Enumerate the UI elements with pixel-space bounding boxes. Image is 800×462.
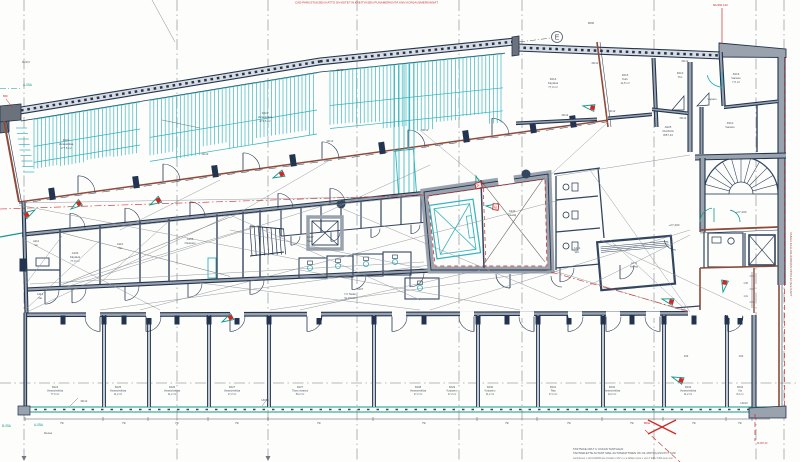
svg-text:1,50: 1,50 [743,282,748,285]
svg-text:A-05A: A-05A [34,423,44,427]
svg-text:Db12: Db12 [682,59,689,63]
svg-text:17,2 m²: 17,2 m² [228,393,237,396]
svg-text:9000: 9000 [588,21,595,25]
svg-text:W57,43: W57,43 [663,133,673,137]
svg-text:77,0 m²: 77,0 m² [51,393,60,396]
svg-text:W-07340: W-07340 [344,296,356,300]
svg-text:VANHA KALLIOLUUNNAN PINTA EI O: VANHA KALLIOLUUNNAN PINTA EI OLE KART [789,232,793,297]
svg-text:79¹: 79¹ [60,421,64,425]
svg-text:K024: K024 [52,385,59,389]
svg-text:17,2 m²: 17,2 m² [414,393,423,396]
svg-text:Db12: Db12 [337,68,344,72]
svg-text:CAD-PIIRUSTUKSEN KATTO ON €STE: CAD-PIIRUSTUKSEN KATTO ON €STE? W €REITY… [295,1,438,5]
svg-text:R+30,5: R+30,5 [22,61,30,64]
svg-text:Aswälj: Aswälj [508,213,516,217]
svg-text:177,5 m²: 177,5 m² [60,146,71,150]
svg-text:A-05A: A-05A [23,83,33,87]
svg-text:WC: WC [575,250,580,254]
svg-text:17,2 m²: 17,2 m² [448,393,457,396]
svg-text:Db12: Db12 [81,399,88,403]
svg-text:79¹: 79¹ [505,421,509,425]
svg-text:K027: K027 [229,385,236,389]
svg-text:Db12: Db12 [327,139,334,143]
svg-text:K031: K031 [550,385,557,389]
svg-text:K033: K033 [685,385,692,389]
svg-text:W-067,20: W-067,20 [757,442,768,445]
svg-text:Vapaus: Vapaus [707,97,717,101]
svg-text:UR14: UR14 [740,401,748,405]
svg-text:79¹: 79¹ [422,421,426,425]
svg-text:11,2 m²: 11,2 m² [114,393,122,396]
svg-text:Db12: Db12 [422,128,429,132]
svg-text:K028: K028 [415,385,422,389]
svg-text:473,5 m²: 473,5 m² [259,119,270,123]
svg-text:Va: Va [34,243,38,247]
svg-text:11,2 m²: 11,2 m² [486,393,494,396]
svg-text:E: E [555,35,560,42]
svg-text:79¹: 79¹ [692,421,696,425]
svg-text:+27,200: +27,200 [669,223,680,227]
svg-text:79¹: 79¹ [567,421,571,425]
svg-text:Oleskelu: Oleskelu [185,241,196,245]
svg-text:K025: K025 [115,385,122,389]
svg-text:Ruutua: Ruutua [44,432,53,435]
svg-text:+27,200: +27,200 [736,210,747,214]
svg-text:79¹: 79¹ [175,421,179,425]
svg-text:11,5 m²: 11,5 m² [620,81,629,85]
svg-text:79¹: 79¹ [738,421,742,425]
svg-text:79¹: 79¹ [630,421,634,425]
svg-text:Aurinkouw u old LKERR aw römää: Aurinkouw u old LKERR aw römäär u MV u u… [573,456,673,460]
svg-text:TANTAWLETTE ACTANT MAIL AUTOMA: TANTAWLETTE ACTANT MAIL AUTOMAATTINEN OK… [573,451,676,455]
svg-text:Varasto: Varasto [725,125,735,129]
svg-text:11,2 m²: 11,2 m² [684,393,692,396]
svg-text:A107: A107 [357,287,364,291]
svg-text:B09a: B09a [644,421,651,425]
svg-text:77,0 m²: 77,0 m² [70,259,80,263]
svg-text:Db12: Db12 [562,113,569,117]
svg-text:Db12: Db12 [592,61,599,65]
svg-text:Db12: Db12 [680,116,687,120]
svg-text:Vaat: Vaat [307,239,313,243]
svg-text:77,0 m²: 77,0 m² [548,85,558,89]
svg-text:Tkn: Tkn [678,75,683,79]
svg-text:1,0x: 1,0x [743,295,748,298]
svg-text:K027: K027 [297,385,304,389]
svg-text:Vai: Vai [38,296,42,300]
svg-text:50,2 m²: 50,2 m² [296,393,305,396]
svg-text:K030: K030 [487,385,494,389]
svg-text:60x360 140: 60x360 140 [713,3,728,7]
svg-text:Vai: Vai [118,246,122,250]
svg-text:Db12: Db12 [202,152,209,156]
svg-text:7,5 m²: 7,5 m² [732,80,740,84]
svg-text:17,2 m²: 17,2 m² [549,393,558,396]
svg-text:79¹: 79¹ [235,421,239,425]
svg-text:79¹: 79¹ [317,421,321,425]
svg-text:Db12: Db12 [609,109,616,113]
svg-text:B09: B09 [3,94,8,98]
svg-text:K026: K026 [169,385,176,389]
svg-text:K029: K029 [449,385,456,389]
svg-text:164: 164 [739,354,744,358]
svg-text:K032: K032 [609,385,616,389]
svg-text:79¹: 79¹ [122,421,126,425]
svg-text:K034: K034 [737,385,744,389]
svg-text:8,2 m²: 8,2 m² [736,393,743,396]
svg-text:164: 164 [684,354,689,358]
svg-text:B-05A: B-05A [2,424,12,428]
svg-text:13,2 m²: 13,2 m² [608,393,617,396]
svg-text:11,2 m²: 11,2 m² [168,393,176,396]
